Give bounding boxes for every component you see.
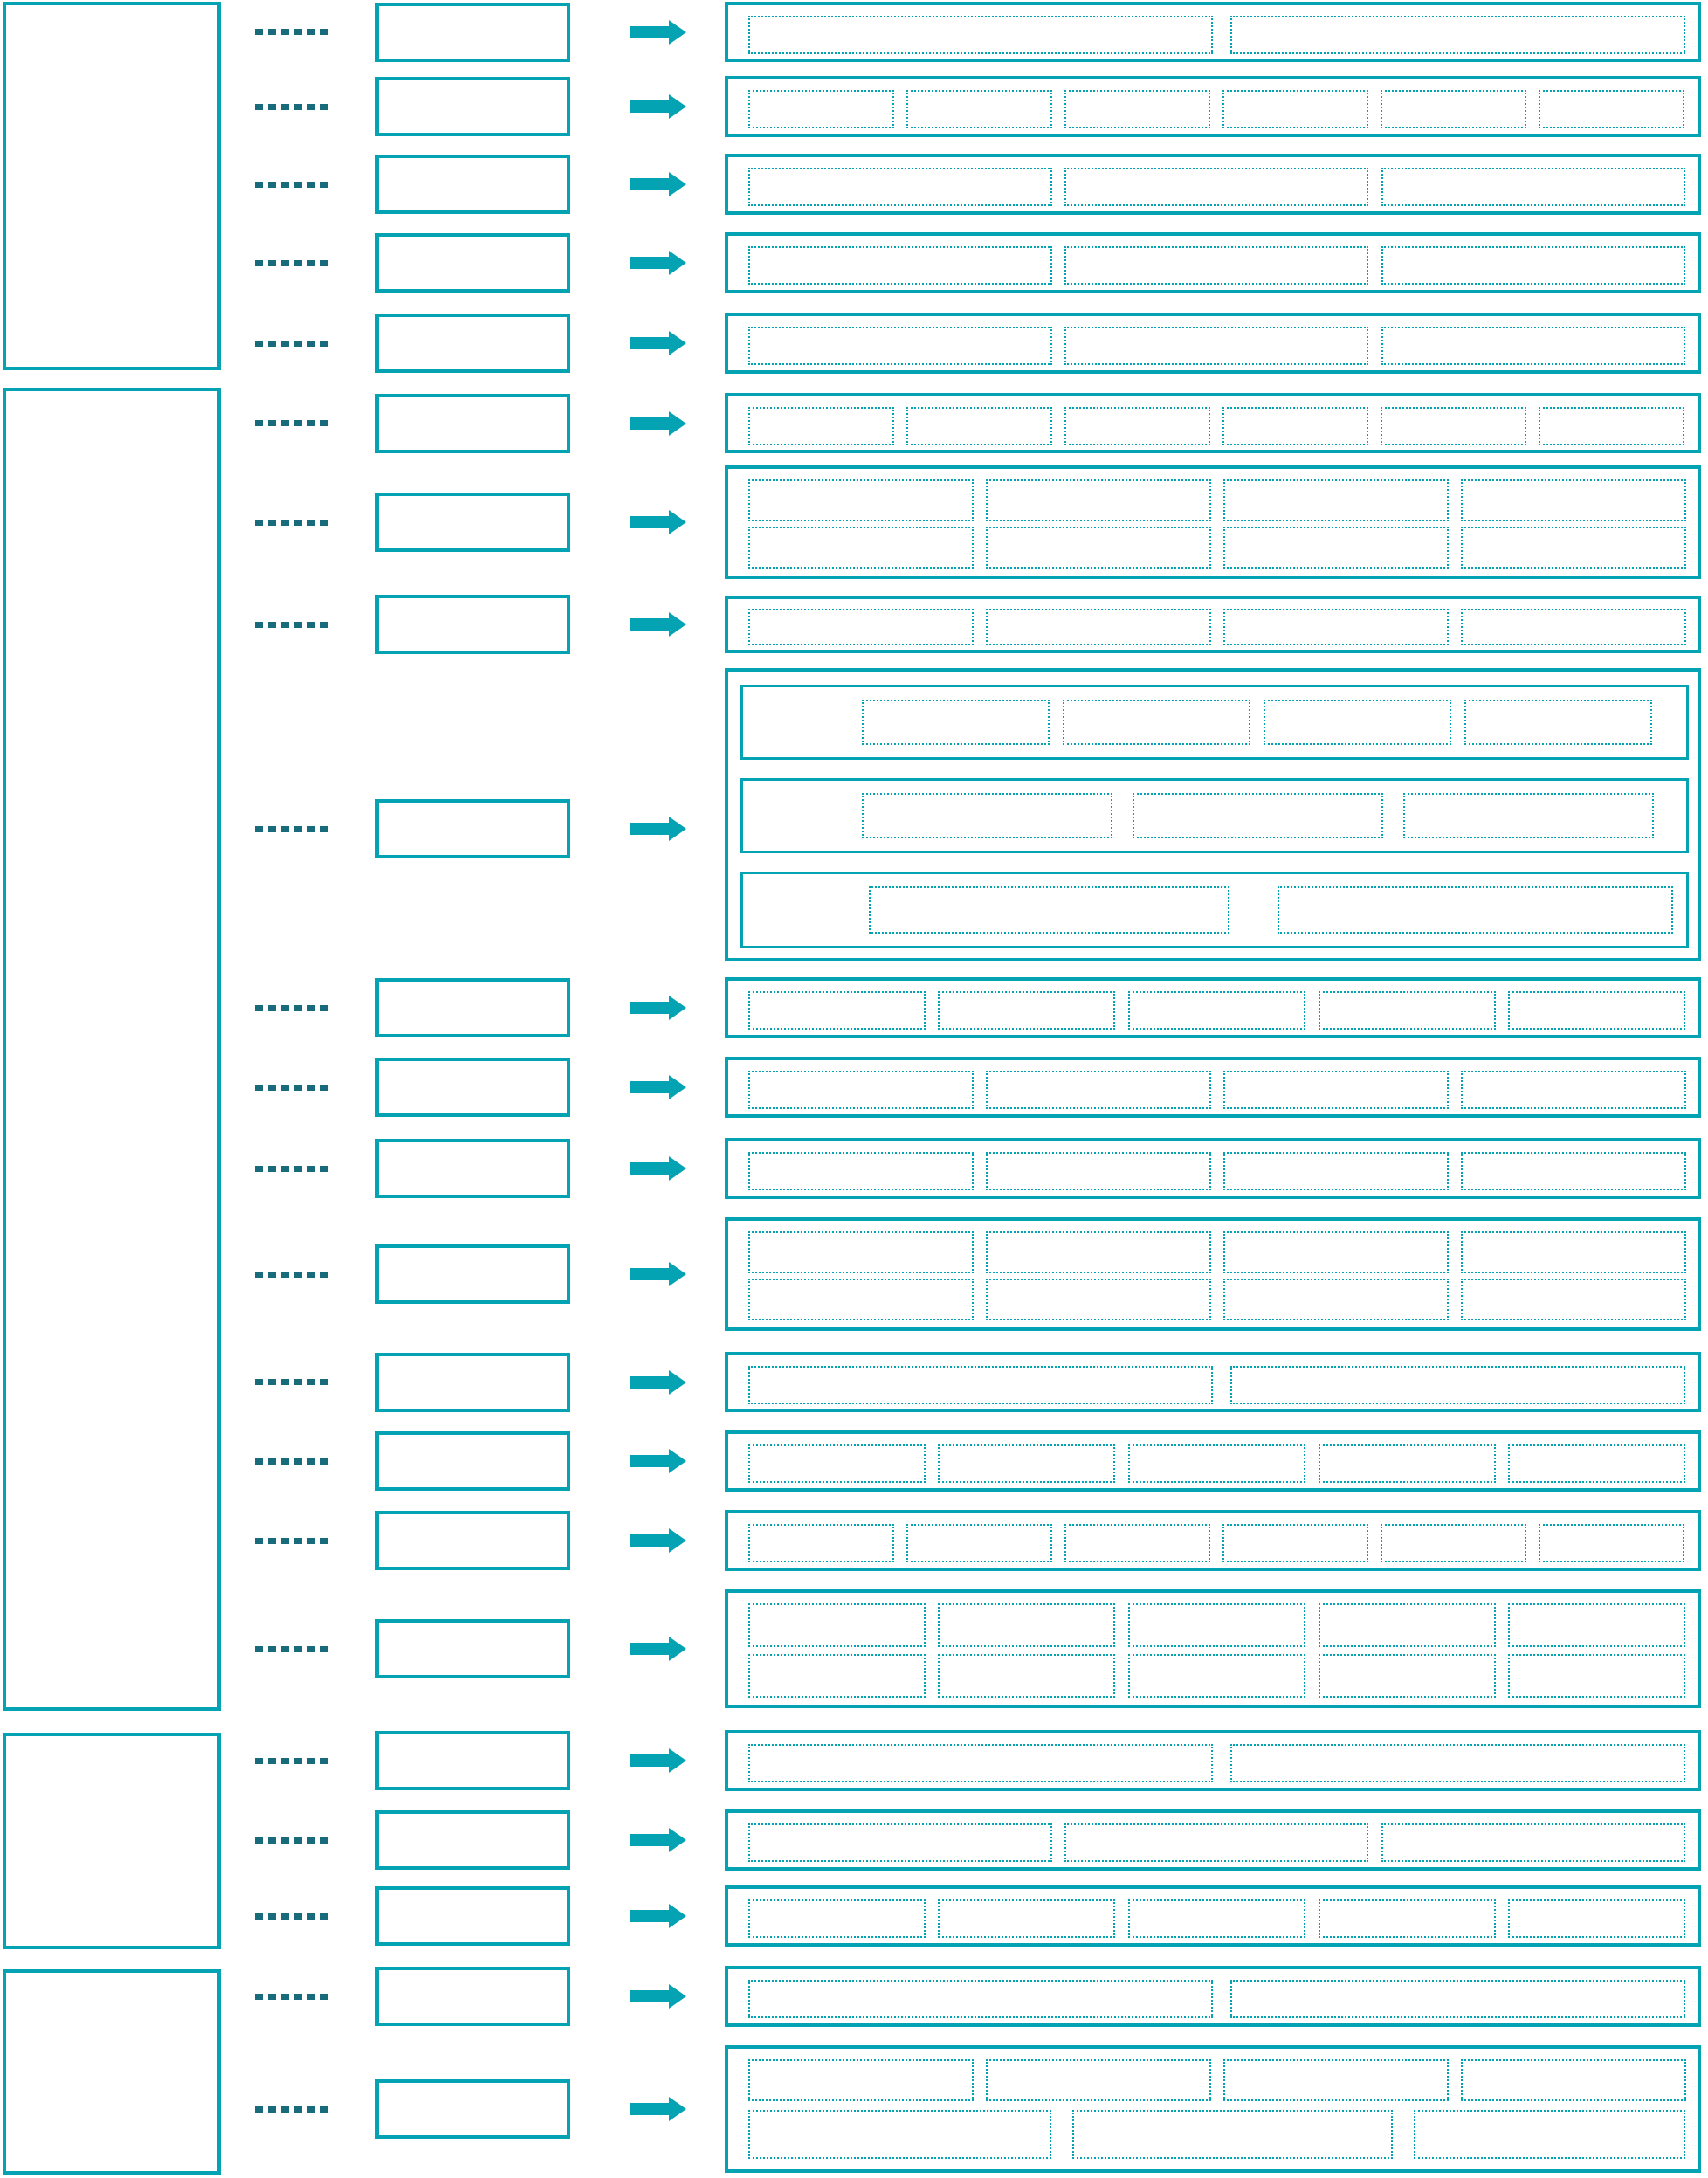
inner-container-row-9-2 <box>740 778 1689 853</box>
arrow-shaft <box>630 618 669 631</box>
dotted-box-row-3-1-2 <box>1064 168 1368 206</box>
dotted-box-row-4-1-3 <box>1381 246 1685 285</box>
middle-box-row-19 <box>375 1810 570 1870</box>
middle-box-row-20 <box>375 1886 570 1946</box>
dotted-box-row-12-1-3 <box>1223 1152 1449 1190</box>
right-container-row-12 <box>725 1138 1701 1199</box>
right-container-row-10 <box>725 977 1701 1038</box>
right-container-row-6 <box>725 393 1701 453</box>
dotted-box-row-14-1-1 <box>748 1366 1213 1404</box>
arrow-icon-row-5 <box>630 331 686 355</box>
dotted-box-row-19-1-3 <box>1381 1823 1685 1862</box>
dotted-box-row-19-1-2 <box>1064 1823 1368 1862</box>
dotted-box-row-17-1-4 <box>1319 1603 1496 1647</box>
arrow-head <box>669 172 686 196</box>
arrow-head <box>669 251 686 275</box>
dotted-box-row-17-2-1 <box>748 1654 926 1698</box>
dotted-box-row-20-1-2 <box>938 1899 1115 1938</box>
middle-box-row-10 <box>375 978 570 1037</box>
inner-container-row-9-3 <box>740 872 1689 948</box>
arrow-shaft <box>630 1910 669 1922</box>
arrow-icon-row-1 <box>630 20 686 45</box>
dotted-box-row-7-1-3 <box>1223 479 1449 521</box>
right-container-row-2 <box>725 76 1701 137</box>
middle-box-row-3 <box>375 155 570 214</box>
dotted-box-row-17-1-3 <box>1128 1603 1305 1647</box>
arrow-head <box>669 1637 686 1661</box>
arrow-shaft <box>630 823 669 835</box>
arrow-icon-row-18 <box>630 1748 686 1773</box>
middle-box-row-1 <box>375 3 570 62</box>
dashed-connector-row-5 <box>255 341 332 347</box>
dotted-box-row-9-1-1 <box>862 793 1112 838</box>
arrow-icon-row-3 <box>630 172 686 196</box>
dotted-box-row-15-1-5 <box>1508 1444 1685 1483</box>
dotted-box-row-10-1-3 <box>1128 991 1305 1030</box>
dotted-box-row-17-1-5 <box>1508 1603 1685 1647</box>
right-container-row-18 <box>725 1730 1701 1791</box>
right-container-row-21 <box>725 1966 1701 2027</box>
dashed-connector-row-16 <box>255 1538 332 1544</box>
dotted-box-row-10-1-2 <box>938 991 1115 1030</box>
arrow-icon-row-9 <box>630 817 686 841</box>
right-container-row-19 <box>725 1809 1701 1871</box>
arrow-head <box>669 1075 686 1099</box>
arrow-icon-row-22 <box>630 2097 686 2121</box>
arrow-shaft <box>630 178 669 190</box>
dotted-box-row-22-1-3 <box>1223 2059 1449 2101</box>
dotted-box-row-9-1-2 <box>1278 886 1673 934</box>
arrow-shaft <box>630 1162 669 1175</box>
dashed-connector-row-21 <box>255 1994 332 2000</box>
dotted-box-row-20-1-3 <box>1128 1899 1305 1938</box>
arrow-head <box>669 996 686 1020</box>
dashed-connector-row-19 <box>255 1837 332 1844</box>
right-container-row-13 <box>725 1217 1701 1331</box>
right-container-row-20 <box>725 1885 1701 1947</box>
dotted-box-row-7-2-3 <box>1223 527 1449 569</box>
dashed-connector-row-17 <box>255 1646 332 1652</box>
group-1 <box>3 2 221 370</box>
middle-box-row-21 <box>375 1967 570 2026</box>
middle-box-row-8 <box>375 595 570 654</box>
arrow-icon-row-2 <box>630 94 686 119</box>
dotted-box-row-17-2-2 <box>938 1654 1115 1698</box>
dotted-box-row-6-1-3 <box>1064 407 1210 445</box>
diagram-canvas <box>0 0 1708 2178</box>
dotted-box-row-13-1-3 <box>1223 1231 1449 1273</box>
dotted-box-row-19-1-1 <box>748 1823 1052 1862</box>
arrow-shaft <box>630 1455 669 1467</box>
arrow-head <box>669 1984 686 2009</box>
dotted-box-row-2-1-6 <box>1539 90 1684 128</box>
dotted-box-row-9-1-4 <box>1464 700 1652 745</box>
arrow-shaft <box>630 26 669 38</box>
middle-box-row-6 <box>375 394 570 453</box>
dotted-box-row-16-1-4 <box>1222 1524 1368 1562</box>
middle-box-row-5 <box>375 314 570 373</box>
middle-box-row-17 <box>375 1619 570 1678</box>
dotted-box-row-22-1-4 <box>1461 2059 1686 2101</box>
right-container-row-9 <box>725 668 1701 961</box>
dotted-box-row-13-1-1 <box>748 1231 974 1273</box>
middle-box-row-15 <box>375 1431 570 1491</box>
arrow-icon-row-21 <box>630 1984 686 2009</box>
dotted-box-row-6-1-2 <box>906 407 1052 445</box>
right-container-row-1 <box>725 2 1701 62</box>
arrow-icon-row-14 <box>630 1370 686 1395</box>
arrow-shaft <box>630 1002 669 1014</box>
arrow-head <box>669 2097 686 2121</box>
dashed-connector-row-10 <box>255 1005 332 1011</box>
dotted-box-row-15-1-1 <box>748 1444 926 1483</box>
right-container-row-5 <box>725 313 1701 374</box>
arrow-head <box>669 510 686 534</box>
arrow-shaft <box>630 516 669 528</box>
dashed-connector-row-6 <box>255 420 332 426</box>
dotted-box-row-2-1-2 <box>906 90 1052 128</box>
arrow-shaft <box>630 257 669 269</box>
dotted-box-row-7-1-4 <box>1461 479 1686 521</box>
dotted-box-row-11-1-1 <box>748 1071 974 1109</box>
dotted-box-row-1-1-1 <box>748 16 1213 54</box>
dotted-box-row-10-1-1 <box>748 991 926 1030</box>
dotted-box-row-21-1-1 <box>748 1980 1213 2018</box>
arrow-head <box>669 612 686 637</box>
arrow-head <box>669 20 686 45</box>
dashed-connector-row-1 <box>255 29 332 35</box>
dotted-box-row-4-1-2 <box>1064 246 1368 285</box>
dotted-box-row-8-1-1 <box>748 609 974 645</box>
right-container-row-22 <box>725 2045 1701 2173</box>
arrow-icon-row-6 <box>630 411 686 436</box>
dotted-box-row-18-1-2 <box>1230 1744 1685 1782</box>
right-container-row-11 <box>725 1057 1701 1118</box>
dotted-box-row-6-1-6 <box>1539 407 1684 445</box>
dotted-box-row-20-1-4 <box>1319 1899 1496 1938</box>
dotted-box-row-2-1-1 <box>748 90 894 128</box>
dotted-box-row-22-2-1 <box>748 2110 1051 2159</box>
arrow-head <box>669 94 686 119</box>
dotted-box-row-12-1-4 <box>1461 1152 1686 1190</box>
arrow-head <box>669 1528 686 1553</box>
arrow-head <box>669 1449 686 1473</box>
dotted-box-row-9-1-2 <box>1063 700 1250 745</box>
dotted-box-row-13-2-2 <box>986 1279 1211 1320</box>
arrow-head <box>669 1156 686 1181</box>
middle-box-row-22 <box>375 2079 570 2139</box>
arrow-head <box>669 331 686 355</box>
dotted-box-row-22-1-1 <box>748 2059 974 2101</box>
dashed-connector-row-12 <box>255 1166 332 1172</box>
dotted-box-row-13-2-4 <box>1461 1279 1686 1320</box>
arrow-icon-row-13 <box>630 1262 686 1286</box>
arrow-head <box>669 1262 686 1286</box>
dashed-connector-row-2 <box>255 104 332 110</box>
middle-box-row-13 <box>375 1244 570 1304</box>
dotted-box-row-11-1-3 <box>1223 1071 1449 1109</box>
dotted-box-row-10-1-5 <box>1508 991 1685 1030</box>
dotted-box-row-12-1-1 <box>748 1152 974 1190</box>
dotted-box-row-17-1-2 <box>938 1603 1115 1647</box>
group-3 <box>3 1733 221 1949</box>
dashed-connector-row-13 <box>255 1272 332 1278</box>
dotted-box-row-2-1-4 <box>1222 90 1368 128</box>
arrow-icon-row-20 <box>630 1904 686 1928</box>
arrow-icon-row-16 <box>630 1528 686 1553</box>
middle-box-row-14 <box>375 1353 570 1412</box>
dotted-box-row-1-1-2 <box>1230 16 1685 54</box>
dotted-box-row-15-1-2 <box>938 1444 1115 1483</box>
dotted-box-row-9-1-1 <box>869 886 1229 934</box>
dotted-box-row-8-1-3 <box>1223 609 1449 645</box>
dotted-box-row-16-1-6 <box>1539 1524 1684 1562</box>
arrow-shaft <box>630 1754 669 1767</box>
arrow-icon-row-8 <box>630 612 686 637</box>
middle-box-row-4 <box>375 233 570 293</box>
arrow-head <box>669 411 686 436</box>
dotted-box-row-5-1-2 <box>1064 327 1368 365</box>
dotted-box-row-20-1-5 <box>1508 1899 1685 1938</box>
dotted-box-row-20-1-1 <box>748 1899 926 1938</box>
dotted-box-row-16-1-2 <box>906 1524 1052 1562</box>
dotted-box-row-2-1-3 <box>1064 90 1210 128</box>
dotted-box-row-17-2-4 <box>1319 1654 1496 1698</box>
dotted-box-row-3-1-1 <box>748 168 1052 206</box>
dashed-connector-row-11 <box>255 1085 332 1091</box>
dotted-box-row-11-1-4 <box>1461 1071 1686 1109</box>
dotted-box-row-9-1-3 <box>1403 793 1654 838</box>
dotted-box-row-2-1-5 <box>1381 90 1526 128</box>
middle-box-row-12 <box>375 1139 570 1198</box>
arrow-head <box>669 1748 686 1773</box>
dotted-box-row-17-2-5 <box>1508 1654 1685 1698</box>
dotted-box-row-7-2-1 <box>748 527 974 569</box>
dotted-box-row-17-2-3 <box>1128 1654 1305 1698</box>
arrow-icon-row-15 <box>630 1449 686 1473</box>
dotted-box-row-9-1-3 <box>1264 700 1451 745</box>
group-2 <box>3 388 221 1711</box>
dashed-connector-row-22 <box>255 2106 332 2113</box>
dotted-box-row-11-1-2 <box>986 1071 1211 1109</box>
middle-box-row-18 <box>375 1731 570 1790</box>
dotted-box-row-16-1-1 <box>748 1524 894 1562</box>
arrow-shaft <box>630 1990 669 2002</box>
dotted-box-row-16-1-3 <box>1064 1524 1210 1562</box>
dashed-connector-row-8 <box>255 622 332 628</box>
dotted-box-row-6-1-5 <box>1381 407 1526 445</box>
dotted-box-row-9-1-2 <box>1133 793 1383 838</box>
arrow-shaft <box>630 2103 669 2115</box>
middle-box-row-2 <box>375 77 570 136</box>
arrow-shaft <box>630 417 669 430</box>
dotted-box-row-14-1-2 <box>1230 1366 1685 1404</box>
dotted-box-row-13-1-4 <box>1461 1231 1686 1273</box>
right-container-row-8 <box>725 596 1701 653</box>
right-container-row-15 <box>725 1430 1701 1492</box>
inner-container-row-9-1 <box>740 685 1689 760</box>
arrow-shaft <box>630 100 669 113</box>
middle-box-row-11 <box>375 1058 570 1117</box>
dotted-box-row-7-1-2 <box>986 479 1211 521</box>
dotted-box-row-8-1-4 <box>1461 609 1686 645</box>
dotted-box-row-15-1-3 <box>1128 1444 1305 1483</box>
dotted-box-row-12-1-2 <box>986 1152 1211 1190</box>
arrow-icon-row-12 <box>630 1156 686 1181</box>
dotted-box-row-5-1-3 <box>1381 327 1685 365</box>
right-container-row-14 <box>725 1352 1701 1412</box>
dotted-box-row-21-1-2 <box>1230 1980 1685 2018</box>
arrow-icon-row-10 <box>630 996 686 1020</box>
dotted-box-row-13-2-3 <box>1223 1279 1449 1320</box>
middle-box-row-7 <box>375 493 570 552</box>
dotted-box-row-16-1-5 <box>1381 1524 1526 1562</box>
dotted-box-row-15-1-4 <box>1319 1444 1496 1483</box>
dotted-box-row-22-2-2 <box>1072 2110 1393 2159</box>
dotted-box-row-9-1-1 <box>862 700 1050 745</box>
arrow-head <box>669 1828 686 1852</box>
arrow-icon-row-7 <box>630 510 686 534</box>
arrow-shaft <box>630 1643 669 1655</box>
arrow-icon-row-11 <box>630 1075 686 1099</box>
arrow-icon-row-17 <box>630 1637 686 1661</box>
arrow-shaft <box>630 1081 669 1093</box>
dotted-box-row-5-1-1 <box>748 327 1052 365</box>
dotted-box-row-8-1-2 <box>986 609 1211 645</box>
dotted-box-row-7-1-1 <box>748 479 974 521</box>
arrow-icon-row-19 <box>630 1828 686 1852</box>
middle-box-row-16 <box>375 1511 570 1570</box>
dashed-connector-row-3 <box>255 182 332 188</box>
middle-box-row-9 <box>375 799 570 858</box>
dotted-box-row-22-1-2 <box>986 2059 1211 2101</box>
right-container-row-16 <box>725 1510 1701 1571</box>
right-container-row-4 <box>725 232 1701 293</box>
dashed-connector-row-15 <box>255 1458 332 1465</box>
arrow-head <box>669 817 686 841</box>
dotted-box-row-13-1-2 <box>986 1231 1211 1273</box>
group-4 <box>3 1969 221 2175</box>
right-container-row-3 <box>725 154 1701 215</box>
dotted-box-row-7-2-2 <box>986 527 1211 569</box>
dotted-box-row-18-1-1 <box>748 1744 1213 1782</box>
arrow-icon-row-4 <box>630 251 686 275</box>
arrow-shaft <box>630 337 669 349</box>
dotted-box-row-6-1-1 <box>748 407 894 445</box>
dotted-box-row-13-2-1 <box>748 1279 974 1320</box>
dashed-connector-row-18 <box>255 1758 332 1764</box>
dotted-box-row-6-1-4 <box>1222 407 1368 445</box>
dotted-box-row-22-2-3 <box>1414 2110 1685 2159</box>
dotted-box-row-7-2-4 <box>1461 527 1686 569</box>
arrow-head <box>669 1370 686 1395</box>
right-container-row-7 <box>725 465 1701 579</box>
arrow-shaft <box>630 1376 669 1389</box>
dashed-connector-row-9 <box>255 826 332 832</box>
dashed-connector-row-20 <box>255 1913 332 1920</box>
right-container-row-17 <box>725 1589 1701 1708</box>
arrow-shaft <box>630 1268 669 1280</box>
dashed-connector-row-14 <box>255 1379 332 1385</box>
arrow-head <box>669 1904 686 1928</box>
dotted-box-row-3-1-3 <box>1381 168 1685 206</box>
dotted-box-row-17-1-1 <box>748 1603 926 1647</box>
dotted-box-row-4-1-1 <box>748 246 1052 285</box>
arrow-shaft <box>630 1834 669 1846</box>
dotted-box-row-10-1-4 <box>1319 991 1496 1030</box>
dashed-connector-row-4 <box>255 260 332 266</box>
dashed-connector-row-7 <box>255 520 332 526</box>
arrow-shaft <box>630 1534 669 1547</box>
